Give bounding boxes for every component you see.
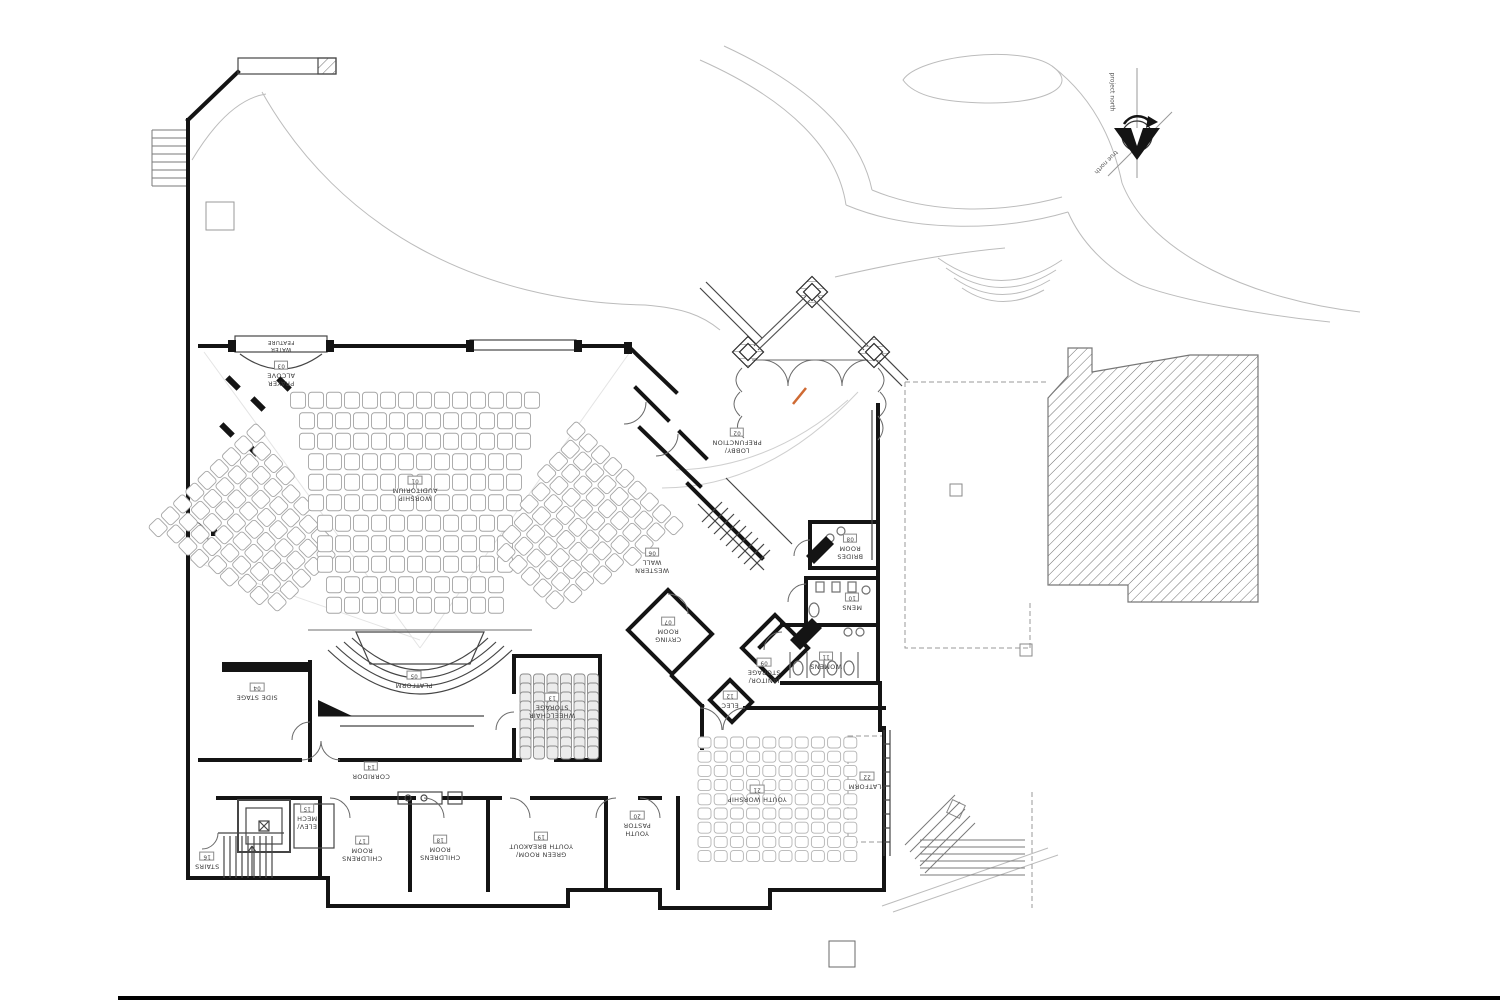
orange-revision-tick <box>793 388 806 404</box>
room-label-mens: MENS10 <box>842 592 862 611</box>
room-label-youth-worship: YOUTH WORSHIP21 <box>727 784 786 803</box>
room-label-brides-room: BRIDESROOM08 <box>837 533 863 560</box>
hatched-existing-building <box>829 348 1258 967</box>
interior-stair-treads <box>224 836 272 878</box>
room-label-elev-mech: ELEV/MECH15 <box>297 803 317 830</box>
room-label-lobby-prefunction: LOBBY/PREFUNCTION02 <box>712 427 762 454</box>
room-label-worship-auditorium: WORSHIPAUDITORIUM01 <box>392 475 437 502</box>
room-label-green-room-youth-breakout: GREEN ROOM/YOUTH BREAKOUT19 <box>509 831 573 858</box>
site-marker-square <box>829 941 855 967</box>
room-label-wheelchair-storage: WHEELCHAIRSTORAGE13 <box>529 692 575 719</box>
compass-north-arrow <box>1108 68 1172 178</box>
platform-wedge <box>318 700 352 716</box>
room-label-elec: ELEC12 <box>721 690 739 709</box>
room-label-stairs: STAIRS16 <box>195 851 219 870</box>
room-label-platform-youth: PLATFORM22 <box>849 771 886 790</box>
room-label-side-stage: SIDE STAGE04 <box>236 682 277 701</box>
seating-section-center-wedge <box>291 392 540 613</box>
entry-piers <box>732 276 889 367</box>
page-rule <box>118 996 1500 1000</box>
floor-plan-linework <box>0 0 1500 1000</box>
room-label-platform-main: PLATFORM05 <box>396 670 433 689</box>
compass-project-north-label: project north <box>1109 73 1116 112</box>
room-label-youth-pastor: YOUTHPASTOR20 <box>623 810 650 837</box>
site-marker-square <box>947 800 966 819</box>
site-marker-square <box>950 484 962 496</box>
room-label-childrens-room-2: CHILDRENSROOM18 <box>420 834 460 861</box>
floor-plan-sheet: WATERFEATUREPRAYERALCOVE03WORSHIPAUDITOR… <box>0 0 1500 1000</box>
side-stage-wall-bar <box>222 662 310 672</box>
room-label-water-feature: WATERFEATURE <box>268 338 295 352</box>
room-label-prayer-alcove: PRAYERALCOVE03 <box>267 360 295 387</box>
room-label-corridor: CORRIDOR14 <box>352 761 390 780</box>
room-label-childrens-room-1: CHILDRENSROOM17 <box>342 835 382 862</box>
room-label-janitor-storage: JANITOR/STORAGE09 <box>747 657 780 684</box>
room-label-womens: WOMENS11 <box>810 651 842 670</box>
room-label-crying-room: CRYINGROOM07 <box>655 616 681 643</box>
room-label-western-wall: WESTERNWALL06 <box>635 547 669 574</box>
